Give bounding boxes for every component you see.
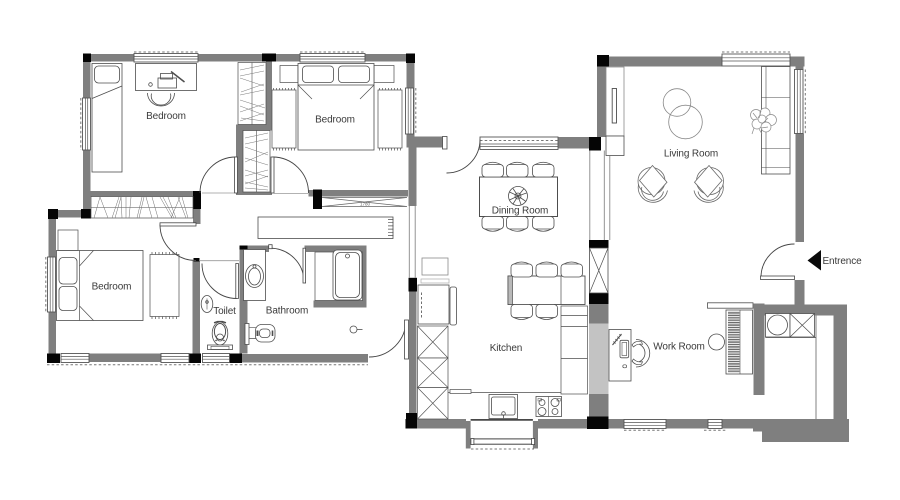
svg-text:Bathroom: Bathroom [266,306,308,317]
svg-text:Work Room: Work Room [653,342,705,353]
svg-text:Living Room: Living Room [664,149,718,160]
svg-text:Kitchen: Kitchen [490,343,523,354]
svg-text:Bedroom: Bedroom [146,111,186,122]
svg-text:1780: 1780 [360,202,371,207]
svg-text:Dining Room: Dining Room [492,206,548,217]
svg-text:Entrence: Entrence [823,256,863,267]
svg-text:Bedroom: Bedroom [315,115,355,126]
svg-text:Bedroom: Bedroom [92,282,132,293]
svg-text:Toilet: Toilet [213,306,236,317]
